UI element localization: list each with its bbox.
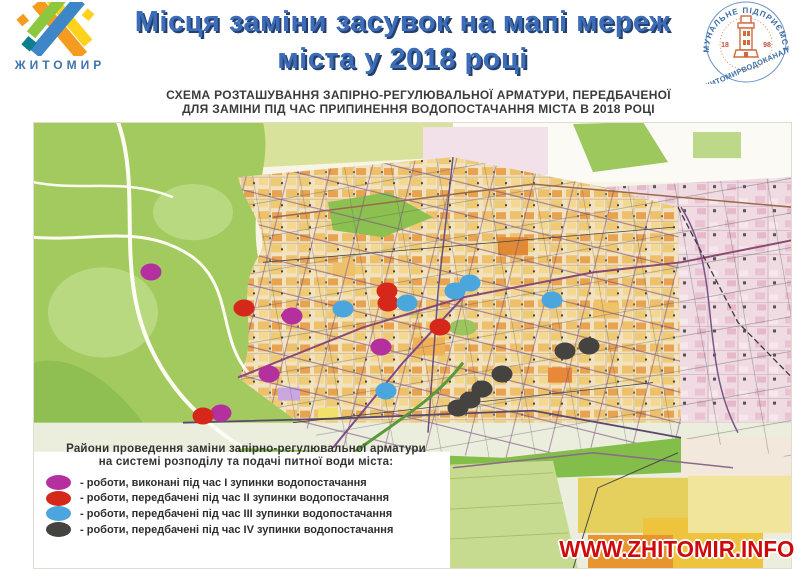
watermark: WWW.ZHITOMIR.INFO bbox=[559, 536, 794, 563]
work-site-stop-4 bbox=[555, 343, 576, 360]
legend-title-line-1: Райони проведення заміни запірно-регулюв… bbox=[40, 443, 452, 456]
work-site-stop-3 bbox=[376, 383, 397, 400]
legend-label: - роботи, передбачені під час III зупинк… bbox=[80, 508, 392, 520]
work-site-stop-2 bbox=[378, 295, 399, 312]
work-site-stop-3 bbox=[542, 292, 563, 309]
work-site-stop-1 bbox=[211, 405, 232, 422]
legend-row: - роботи, передбачені під час III зупинк… bbox=[46, 506, 452, 522]
work-site-stop-4 bbox=[448, 400, 469, 417]
map-subtitle: СХЕМА РОЗТАШУВАННЯ ЗАПІРНО-РЕГУЛЮВАЛЬНОЇ… bbox=[55, 88, 782, 116]
slide: ЖИТОМИР Місця заміни засувок на мапі мер… bbox=[0, 0, 797, 569]
legend-row: - роботи, передбачені під час II зупинки… bbox=[46, 491, 452, 507]
legend-dot-stop-4-icon bbox=[46, 522, 71, 537]
utility-seal-icon: КОМУНАЛЬНЕ ПІДПРИЄМСТВО 18 98 ЖИТОМИРВОД… bbox=[700, 0, 792, 84]
page-title: Місця заміни засувок на мапі мереж міста… bbox=[112, 4, 693, 78]
city-logo-icon bbox=[8, 2, 112, 56]
legend-dot-stop-1-icon bbox=[46, 475, 71, 490]
work-site-stop-1 bbox=[371, 339, 392, 356]
work-site-stop-1 bbox=[259, 366, 280, 383]
map-subtitle-line-1: СХЕМА РОЗТАШУВАННЯ ЗАПІРНО-РЕГУЛЮВАЛЬНОЇ… bbox=[55, 88, 782, 102]
legend-title: Райони проведення заміни запірно-регулюв… bbox=[40, 443, 452, 469]
seal-year-right: 98 bbox=[763, 42, 771, 49]
legend-items: - роботи, виконані під час I зупинки вод… bbox=[40, 475, 452, 537]
work-site-stop-3 bbox=[445, 283, 466, 300]
work-site-stop-1 bbox=[282, 308, 303, 325]
legend-row: - роботи, виконані під час I зупинки вод… bbox=[46, 475, 452, 491]
work-site-stop-4 bbox=[492, 366, 513, 383]
seal-year-left: 18 bbox=[721, 42, 729, 49]
work-site-stop-4 bbox=[579, 338, 600, 355]
legend-label: - роботи, передбачені під час II зупинки… bbox=[80, 492, 389, 504]
title-line-1: Місця заміни засувок на мапі мереж bbox=[112, 4, 693, 41]
work-site-stop-3 bbox=[333, 301, 354, 318]
work-site-stop-2 bbox=[430, 319, 451, 336]
city-logo: ЖИТОМИР bbox=[8, 2, 116, 82]
legend-title-line-2: на системі розподілу та подачі питної во… bbox=[40, 456, 452, 469]
legend-label: - роботи, передбачені під час IV зупинки… bbox=[80, 524, 393, 536]
legend-dot-stop-3-icon bbox=[46, 506, 71, 521]
title-line-2: міста у 2018 році bbox=[112, 41, 693, 78]
work-site-stop-2 bbox=[234, 300, 255, 317]
map-subtitle-line-2: ДЛЯ ЗАМІНИ ПІД ЧАС ПРИПИНЕННЯ ВОДОПОСТАЧ… bbox=[55, 102, 782, 116]
legend-dot-stop-2-icon bbox=[46, 491, 71, 506]
work-site-stop-2 bbox=[193, 408, 214, 425]
legend-row: - роботи, передбачені під час IV зупинки… bbox=[46, 522, 452, 538]
legend-label: - роботи, виконані під час I зупинки вод… bbox=[80, 477, 367, 489]
legend: Райони проведення заміни запірно-регулюв… bbox=[40, 443, 452, 537]
city-name: ЖИТОМИР bbox=[8, 58, 112, 72]
work-site-stop-1 bbox=[141, 264, 162, 281]
utility-seal: КОМУНАЛЬНЕ ПІДПРИЄМСТВО 18 98 ЖИТОМИРВОД… bbox=[700, 0, 792, 84]
work-site-stop-3 bbox=[397, 295, 418, 312]
